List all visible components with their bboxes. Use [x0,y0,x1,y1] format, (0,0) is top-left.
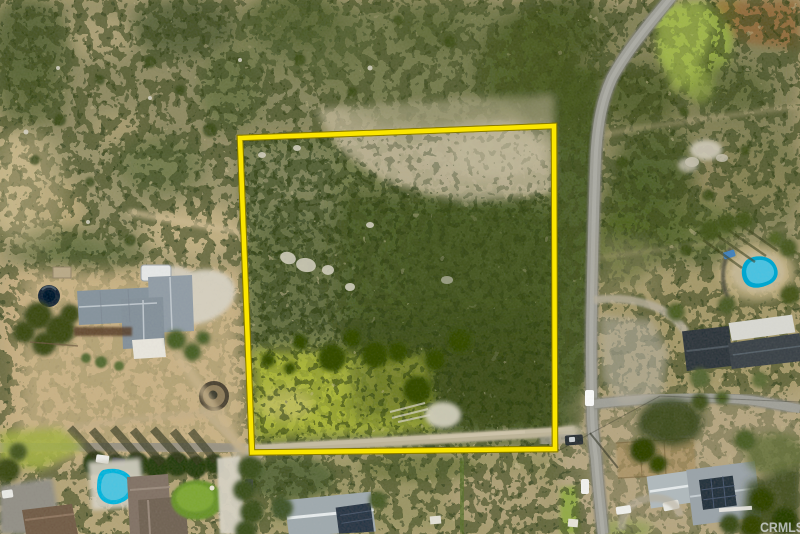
svg-text:CRMLS: CRMLS [760,519,800,534]
